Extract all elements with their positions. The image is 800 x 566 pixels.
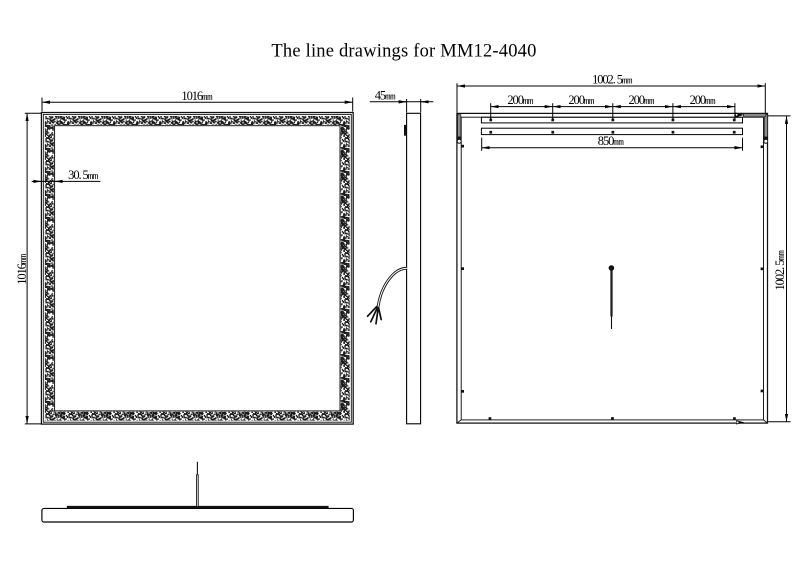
svg-text:1002. 5mm: 1002. 5mm [773,250,787,291]
svg-text:200mm: 200mm [629,93,656,107]
svg-text:1016mm: 1016mm [181,89,213,103]
svg-text:200mm: 200mm [507,93,534,107]
svg-text:45mm: 45mm [375,88,396,102]
svg-text:200mm: 200mm [690,93,717,107]
svg-text:30. 5mm: 30. 5mm [68,168,99,182]
svg-text:The line drawings for MM12-404: The line drawings for MM12-4040 [271,42,536,62]
svg-text:1016mm: 1016mm [15,253,29,285]
svg-text:1002. 5mm: 1002. 5mm [592,73,633,87]
svg-text:200mm: 200mm [568,93,595,107]
svg-text:850mm: 850mm [598,134,625,148]
